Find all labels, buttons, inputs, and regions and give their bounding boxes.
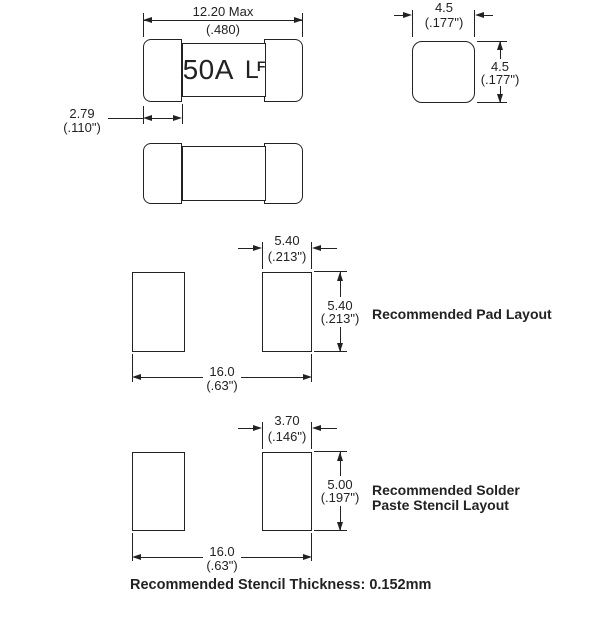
fuse-left-endcap (143, 39, 182, 102)
dim-stencil-span-mm: 16.0 (192, 545, 252, 558)
dim-end-height-in: (.177") (476, 73, 524, 86)
stencil-layout-label-line2: Paste Stencil Layout (372, 498, 520, 513)
leader-line (108, 118, 143, 119)
dim-pad-height-in: (.213") (313, 312, 367, 325)
arrowhead (497, 94, 503, 103)
dim-stencil-width-in: (.146") (257, 430, 317, 443)
pad-right (262, 272, 312, 352)
dim-line (321, 428, 337, 429)
dim-body-length-in: (.480) (163, 23, 283, 36)
dim-line (321, 248, 337, 249)
arrowhead (337, 272, 343, 281)
arrowhead (303, 554, 312, 560)
dim-end-width-mm: 4.5 (414, 1, 474, 14)
dim-end-width-in: (.177") (414, 16, 474, 29)
fuse-right-endcap (264, 39, 303, 102)
pad-layout-label: Recommended Pad Layout (372, 307, 552, 322)
dim-stencil-span-in: (.63") (192, 559, 252, 572)
arrowhead (132, 374, 141, 380)
dim-line (143, 20, 303, 21)
dim-endcap-width-mm: 2.79 (56, 107, 108, 120)
dim-line (483, 15, 493, 16)
stencil-layout-label: Recommended Solder Paste Stencil Layout (372, 483, 520, 513)
arrowhead (294, 17, 303, 23)
stencil-thickness-note: Recommended Stencil Thickness: 0.152mm (130, 577, 431, 593)
arrowhead (337, 522, 343, 531)
dim-line (238, 248, 254, 249)
dim-pad-width-mm: 5.40 (257, 234, 317, 247)
dim-stencil-width-mm: 3.70 (257, 414, 317, 427)
arrowhead (497, 41, 503, 50)
fuse-right-endcap (264, 143, 303, 204)
dim-pad-span-in: (.63") (192, 379, 252, 392)
fuse-body (182, 146, 266, 201)
amp-rating-text: 50A (183, 54, 234, 86)
arrowhead (475, 12, 484, 18)
arrowhead (173, 115, 182, 121)
littelfuse-logo: LF (245, 56, 265, 85)
stencil-layout-label-line1: Recommended Solder (372, 483, 520, 498)
dim-line (152, 118, 174, 119)
arrowhead (337, 343, 343, 352)
ext-line (412, 10, 413, 37)
stencil-right (262, 452, 312, 531)
arrowhead (143, 115, 152, 121)
fuse-marking: 50A LF (182, 43, 266, 97)
dim-endcap-width-in: (.110") (56, 121, 108, 134)
arrowhead (403, 12, 412, 18)
arrowhead (132, 554, 141, 560)
fuse-left-endcap (143, 143, 182, 204)
dim-pad-width-in: (.213") (257, 250, 317, 263)
arrowhead (337, 452, 343, 461)
ext-line (182, 104, 183, 124)
fuse-end-view (412, 41, 475, 103)
dim-body-length-mm: 12.20 Max (163, 5, 283, 18)
pad-left (132, 272, 185, 352)
arrowhead (303, 374, 312, 380)
dim-line (238, 428, 254, 429)
stencil-left (132, 452, 185, 531)
dim-pad-span-mm: 16.0 (192, 365, 252, 378)
dim-stencil-height-in: (.197") (313, 491, 367, 504)
arrowhead (143, 17, 152, 23)
fuse-mechanical-drawing: 50A LF 12.20 Max (.480) 2.79 (.110") 4.5… (0, 0, 600, 632)
